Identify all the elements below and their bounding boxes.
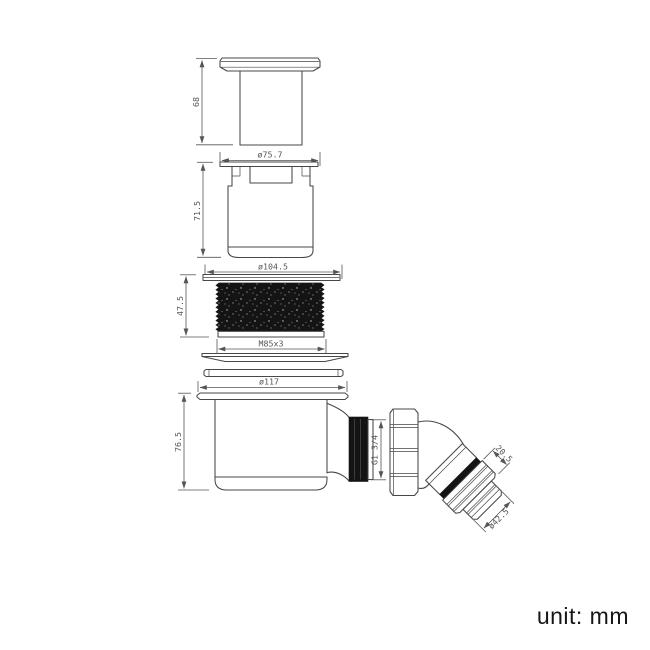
washer-bar	[204, 370, 343, 377]
trap-outlet-bell	[328, 404, 350, 482]
part-flat-washer	[204, 370, 343, 377]
cap-flange	[220, 58, 320, 71]
dim-label-flange-diameter: ø104.5	[258, 262, 288, 272]
upper-body-tab-right	[302, 167, 310, 177]
upper-body-recess	[250, 167, 292, 184]
upper-body-tab-left	[233, 167, 241, 177]
dim-label-elbow-nut-length: 20.5	[494, 443, 515, 464]
dim-label-collar-height: 47.5	[175, 296, 185, 316]
dim-trap-diameter: ø117	[198, 377, 347, 392]
dim-label-body-height: 71.5	[192, 201, 202, 221]
dim-label-trap-height: 76.5	[173, 432, 183, 452]
part-elbow-nut	[390, 409, 418, 496]
elbow-bend-outer	[418, 421, 464, 445]
collar-thread-body	[216, 283, 324, 331]
dim-label-trap-diameter: ø117	[259, 377, 279, 387]
dim-body-height: 71.5	[192, 162, 221, 257]
part-upper-body-view	[220, 162, 318, 258]
part-cap-view	[220, 58, 320, 145]
dim-collar-height: 47.5	[175, 275, 209, 337]
dim-label-elbow-outlet-diameter: ø42.5	[486, 506, 511, 531]
upper-body-walls	[228, 186, 313, 247]
trap-flange	[197, 393, 348, 400]
elbow-nut-outline	[390, 409, 418, 496]
trap-outlet-thread	[349, 417, 368, 482]
dim-label-outlet-thread: G1 3/4	[370, 435, 380, 465]
technical-drawing-canvas: 68 ø75.7 71.5 ø104.5	[0, 0, 650, 650]
collar-bottom-plate	[218, 331, 324, 337]
dim-collar-thread: M85x3	[217, 338, 326, 353]
upper-body-flange	[220, 162, 318, 167]
elbow-bend-inner	[418, 484, 430, 489]
part-elbow-connector: 20.5 ø42.5	[424, 424, 541, 541]
washer-taper	[202, 357, 348, 362]
part-threaded-collar-view	[203, 275, 340, 338]
trap-bottom	[215, 477, 327, 490]
unit-note: unit: mm	[537, 603, 629, 630]
dim-trap-height: 76.5	[173, 393, 209, 490]
upper-body-bottom	[228, 247, 313, 258]
technical-drawing-page: 68 ø75.7 71.5 ø104.5	[0, 0, 650, 650]
dim-cap-height: 68	[191, 59, 233, 145]
cap-body	[240, 71, 302, 145]
part-sealing-washer	[202, 354, 348, 362]
trap-walls	[215, 400, 327, 478]
dim-label-cap-height: 68	[191, 97, 201, 107]
dim-label-collar-thread: M85x3	[259, 338, 284, 348]
dim-label-cap-diameter: ø75.7	[258, 150, 283, 160]
part-trap-body-view	[197, 393, 373, 490]
